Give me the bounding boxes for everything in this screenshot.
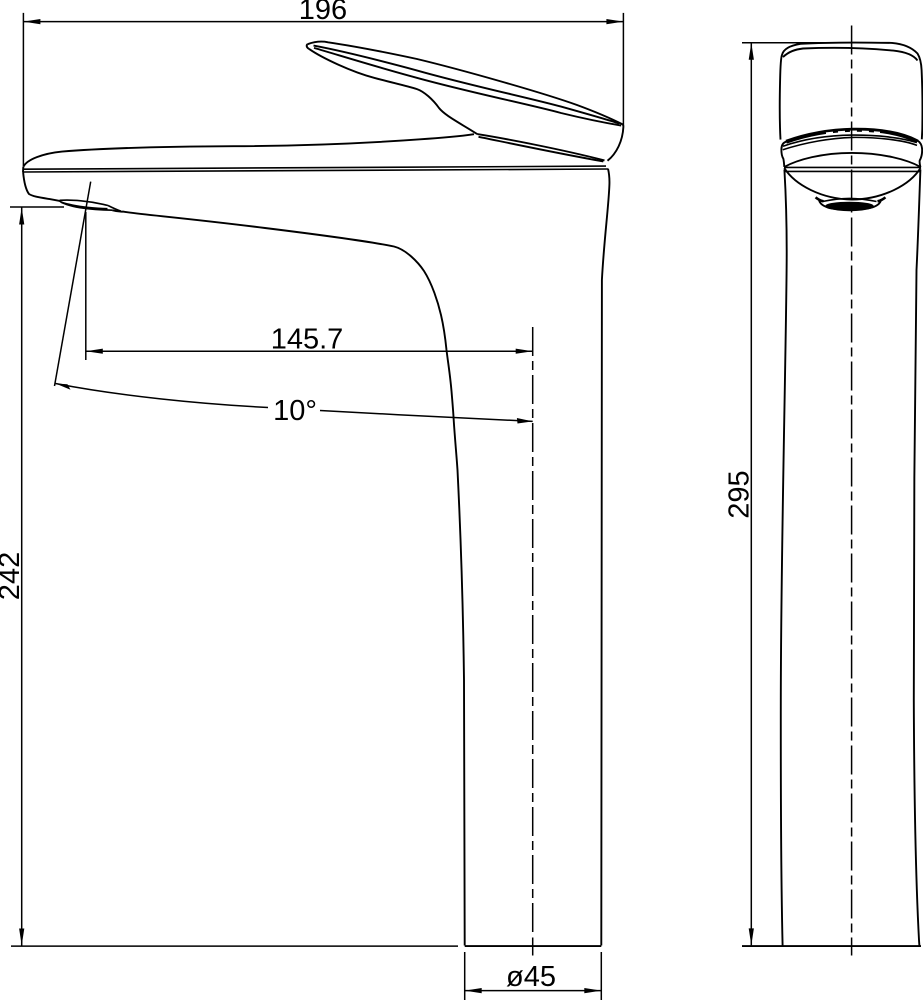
svg-text:10°: 10° xyxy=(273,395,317,427)
svg-text:242: 242 xyxy=(0,552,26,600)
svg-text:196: 196 xyxy=(299,0,347,26)
svg-text:295: 295 xyxy=(724,470,756,518)
svg-text:145.7: 145.7 xyxy=(271,324,344,356)
svg-text:ø45: ø45 xyxy=(506,961,556,993)
